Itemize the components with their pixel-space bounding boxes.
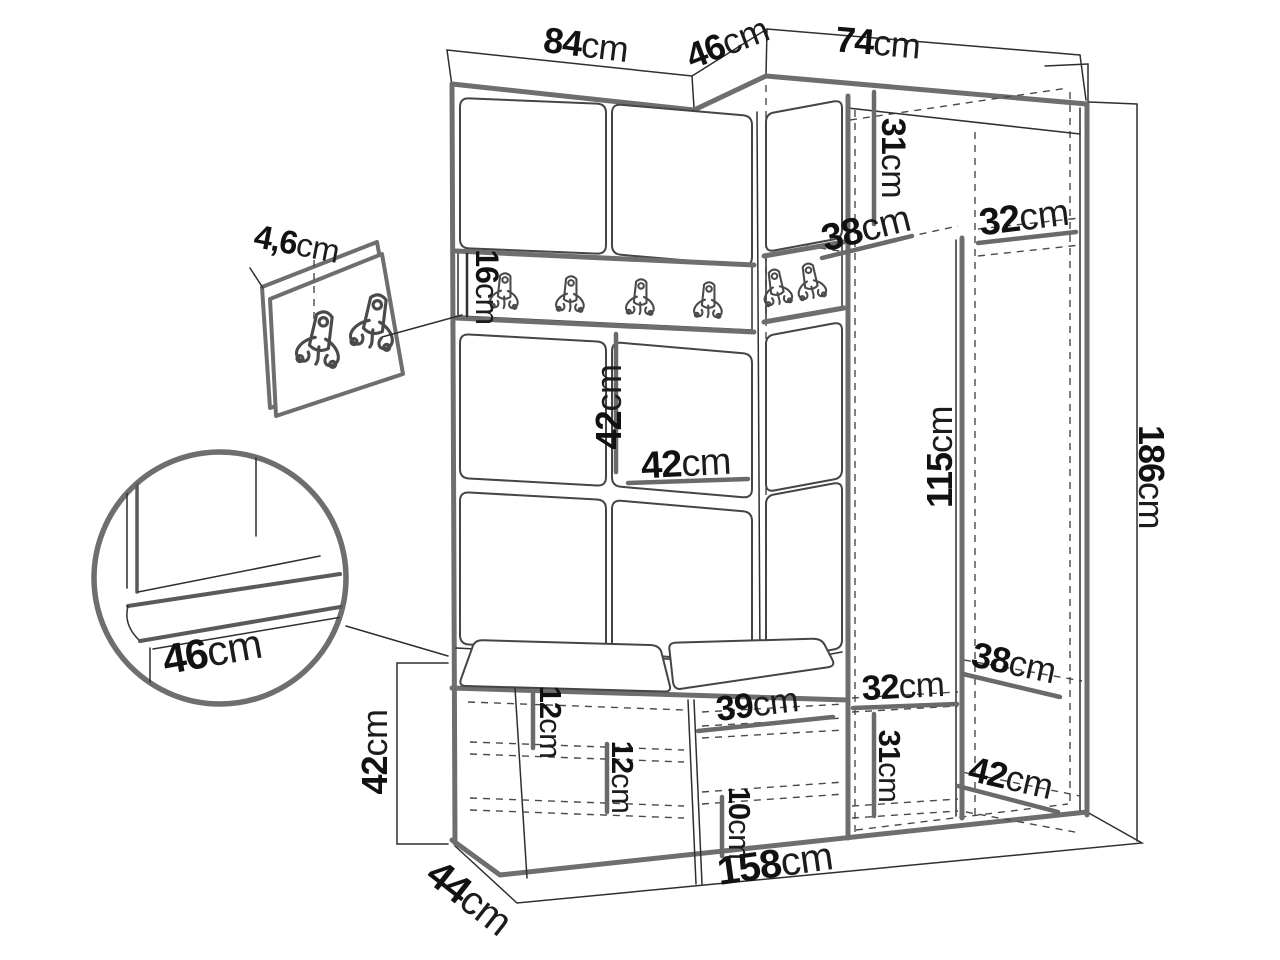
bench-seat-cushion <box>460 640 670 691</box>
dim-label-lower-shelf-depth-lower: 42cm <box>965 747 1057 806</box>
furniture-dimension-diagram: 84cm 46cm 74cm 4,6cm 16cm 31cm 38cm 32cm… <box>0 0 1280 960</box>
wall-cushion-panel <box>612 501 752 664</box>
coat-hook-icon <box>556 276 585 312</box>
corner-edge <box>757 85 766 664</box>
dim-label-seat-detail-depth: 46cm <box>159 619 265 683</box>
dim-label-bench-height: 42cm <box>354 709 395 794</box>
dim-label-total-height: 186cm <box>1132 425 1173 529</box>
dim-label-tall-compartment-height: 115cm <box>919 406 960 508</box>
dim-label-lower-shelf-depth-upper: 38cm <box>968 633 1060 691</box>
dim-label-coat-rail-height: 16cm <box>469 249 505 324</box>
coat-hook-icon <box>626 279 655 315</box>
coat-hook-icon <box>760 267 793 306</box>
wall-cushion-panel <box>460 334 606 485</box>
dim-label-lower-shelf-width: 32cm <box>861 664 946 707</box>
dim-label-lower-compartment-height: 31cm <box>873 730 908 803</box>
coat-hook-icon <box>794 261 827 300</box>
detail-connector-line <box>346 626 448 656</box>
wall-cushion-panel <box>460 492 606 651</box>
wall-cushion-panel <box>612 105 752 266</box>
hook-panel-detail <box>250 242 462 416</box>
dim-label-upper-right-shelf-width: 32cm <box>977 192 1071 245</box>
dim-label-mid-panel-width: 42cm <box>588 364 629 449</box>
dim-label-top-width-right: 74cm <box>834 18 922 66</box>
dim-label-bench-shelf-spacing-left: 12cm <box>534 686 569 759</box>
wall-cushion-panel <box>766 483 842 661</box>
wall-cushion-panel <box>460 98 606 253</box>
bench-seat-cushion <box>669 639 833 689</box>
wall-cushion-panel <box>766 323 842 491</box>
dim-label-mid-panel-height: 42cm <box>640 441 732 488</box>
corner-return-panel <box>760 101 844 666</box>
dim-label-bench-depth: 44cm <box>418 851 520 944</box>
dim-label-upper-compartment-height: 31cm <box>874 118 912 198</box>
bench-corner-detail-circle <box>94 452 448 704</box>
diagram-svg: 84cm 46cm 74cm 4,6cm 16cm 31cm 38cm 32cm… <box>0 0 1280 960</box>
dim-label-bench-shelf-spacing-right: 12cm <box>606 741 641 814</box>
dim-label-top-depth-corner: 46cm <box>680 8 774 77</box>
coat-hook-icon <box>694 282 723 318</box>
dim-label-hook-panel-thickness: 4,6cm <box>251 217 342 270</box>
